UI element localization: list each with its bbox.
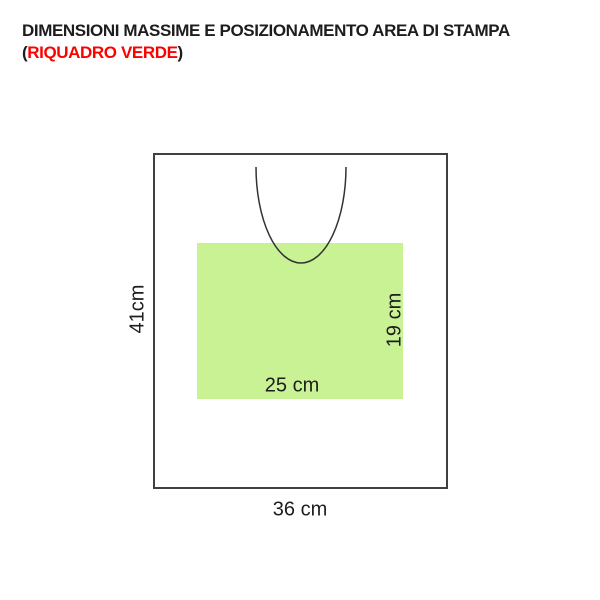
title-line2: (RIQUADRO VERDE) [22,42,510,64]
title-paren-close: ) [178,43,183,62]
bag-height-label: 41cm [127,285,150,334]
print-area-height-label: 19 cm [384,293,407,347]
dimension-diagram-page: DIMENSIONI MASSIME E POSIZIONAMENTO AREA… [0,0,600,600]
page-title: DIMENSIONI MASSIME E POSIZIONAMENTO AREA… [22,20,510,64]
title-line1: DIMENSIONI MASSIME E POSIZIONAMENTO AREA… [22,21,510,40]
bag-width-label: 36 cm [273,499,327,522]
title-highlight: RIQUADRO VERDE [27,43,177,62]
print-area-width-label: 25 cm [265,375,319,398]
